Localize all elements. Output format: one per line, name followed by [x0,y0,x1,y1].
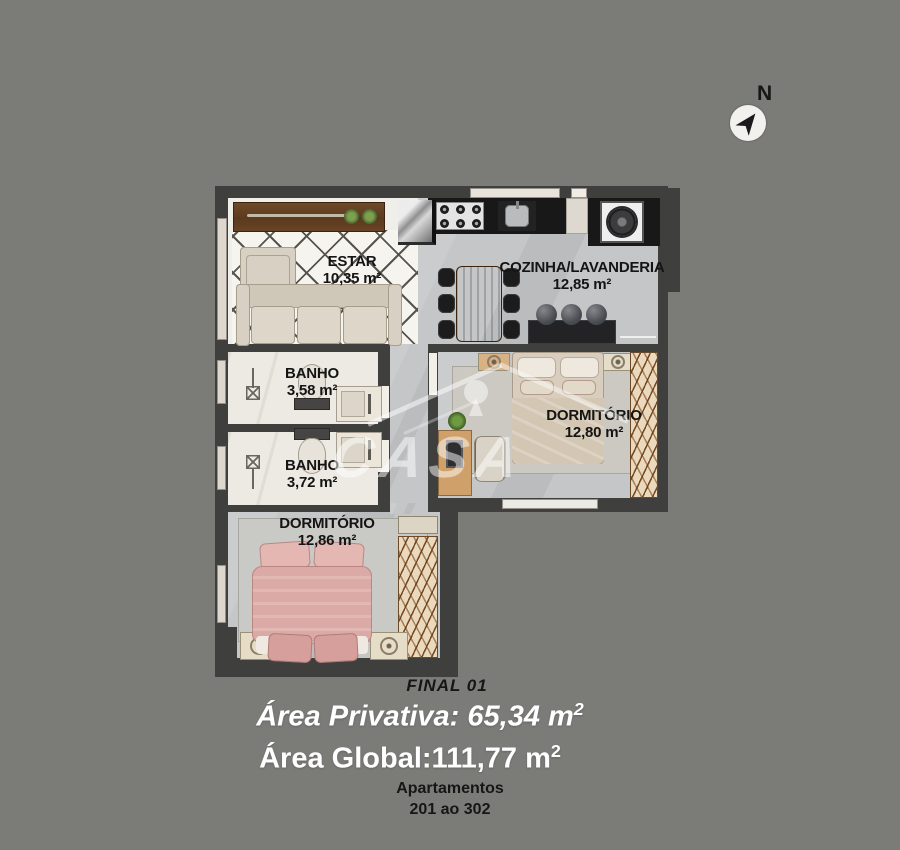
bed-pillow [517,357,556,378]
sofa-back [236,284,402,308]
burner-icon [456,219,465,228]
area-privativa-line: Área Privativa: 65,34 m2 [210,699,630,734]
room-label-dormitorio-2: DORMITÓRIO 12,86 m² [237,516,417,550]
burner-icon [472,205,481,214]
room-name: BANHO [252,458,372,475]
window-banho-1 [217,360,226,404]
nightstand [370,632,408,660]
room-name: ESTAR [272,254,432,271]
room-area: 12,85 m² [478,277,686,294]
floor-hall-doorway [390,503,428,514]
apartamentos-label: Apartamentos [350,780,550,798]
final-label: FINAL 01 [347,676,547,696]
area-global-line: Área Global:111,77 m2 [210,741,610,776]
bed-cushion [520,380,554,395]
plant-icon [344,209,359,224]
nightstand [478,353,510,371]
wall-step-bottom-left [215,627,237,677]
dining-chair [438,320,455,339]
bed-dormitorio-2 [256,540,368,662]
sofa-seat-cushion [343,306,387,344]
vase-icon [536,304,557,325]
faucet-icon [368,440,371,460]
room-label-cozinha: COZINHA/LAVANDERIA 12,85 m² [478,260,686,294]
burner-icon [440,205,449,214]
opening-laundry-top [571,188,587,198]
superscript-2: 2 [551,741,561,761]
room-name: DORMITÓRIO [504,408,684,425]
dining-chair [503,294,520,313]
bed-cushion [562,380,596,395]
room-area: 12,86 m² [237,533,417,550]
bed-duvet [252,566,372,644]
dining-chair [438,268,455,287]
plant-icon [362,209,377,224]
room-label-banho-1: BANHO 3,58 m² [252,366,372,400]
sofa-seat-cushion [251,306,295,344]
room-label-banho-2: BANHO 3,72 m² [252,458,372,492]
burner-icon [472,219,481,228]
room-area: 10,35 m² [272,271,432,288]
washing-machine [600,201,644,243]
window-banho-2 [217,446,226,490]
toilet-tank [294,398,330,410]
dining-chair [438,294,455,313]
bed-pillow [313,633,358,663]
kitchen-sink [498,201,536,231]
burner-icon [456,205,465,214]
burner-icon [440,219,449,228]
laptop-icon [446,440,463,468]
room-label-dormitorio-1: DORMITÓRIO 12,80 m² [504,408,684,442]
vase-icon [586,304,607,325]
room-name: COZINHA/LAVANDERIA [478,260,686,277]
fridge [398,200,436,245]
washer-drum-icon [608,208,636,236]
sideboard-detail [247,214,357,217]
sofa [236,284,402,346]
desk-chair [474,436,506,482]
apartamentos-range: 201 ao 302 [350,801,550,819]
sofa-seat-cushion [297,306,341,344]
bed-pillow [560,357,599,378]
area-global-text: Área Global:111,77 m [259,743,551,775]
superscript-2: 2 [574,699,584,719]
stove [436,202,484,230]
room-area: 12,80 m² [504,425,684,442]
door-dormitorio-1 [429,353,437,395]
lamp-icon [380,637,398,655]
compass: N [722,80,802,150]
window-dormitorio-2 [217,565,226,623]
sofa-armrest [388,284,402,346]
column-marble [566,198,588,234]
plant-icon [448,412,466,430]
dining-chair [503,320,520,339]
floor-plan-page: N [0,0,900,850]
bed-pillow [267,633,312,663]
north-label: N [757,82,772,106]
counter-edge-line [620,336,656,338]
window-dormitorio-1-bottom [502,499,598,509]
room-name: DORMITÓRIO [237,516,417,533]
room-name: BANHO [252,366,372,383]
area-privativa-text: Área Privativa: 65,34 m [256,701,574,733]
lamp-icon [611,355,625,369]
room-area: 3,72 m² [252,475,372,492]
window-kitchen-top [470,188,560,198]
room-label-estar: ESTAR 10,35 m² [272,254,432,288]
faucet-icon [516,201,519,209]
window-estar-left [217,218,227,340]
floor-hall [390,344,428,505]
room-area: 3,58 m² [252,383,372,400]
lamp-icon [487,355,501,369]
vase-icon [561,304,582,325]
desk [438,430,472,496]
sofa-armrest [236,284,250,346]
